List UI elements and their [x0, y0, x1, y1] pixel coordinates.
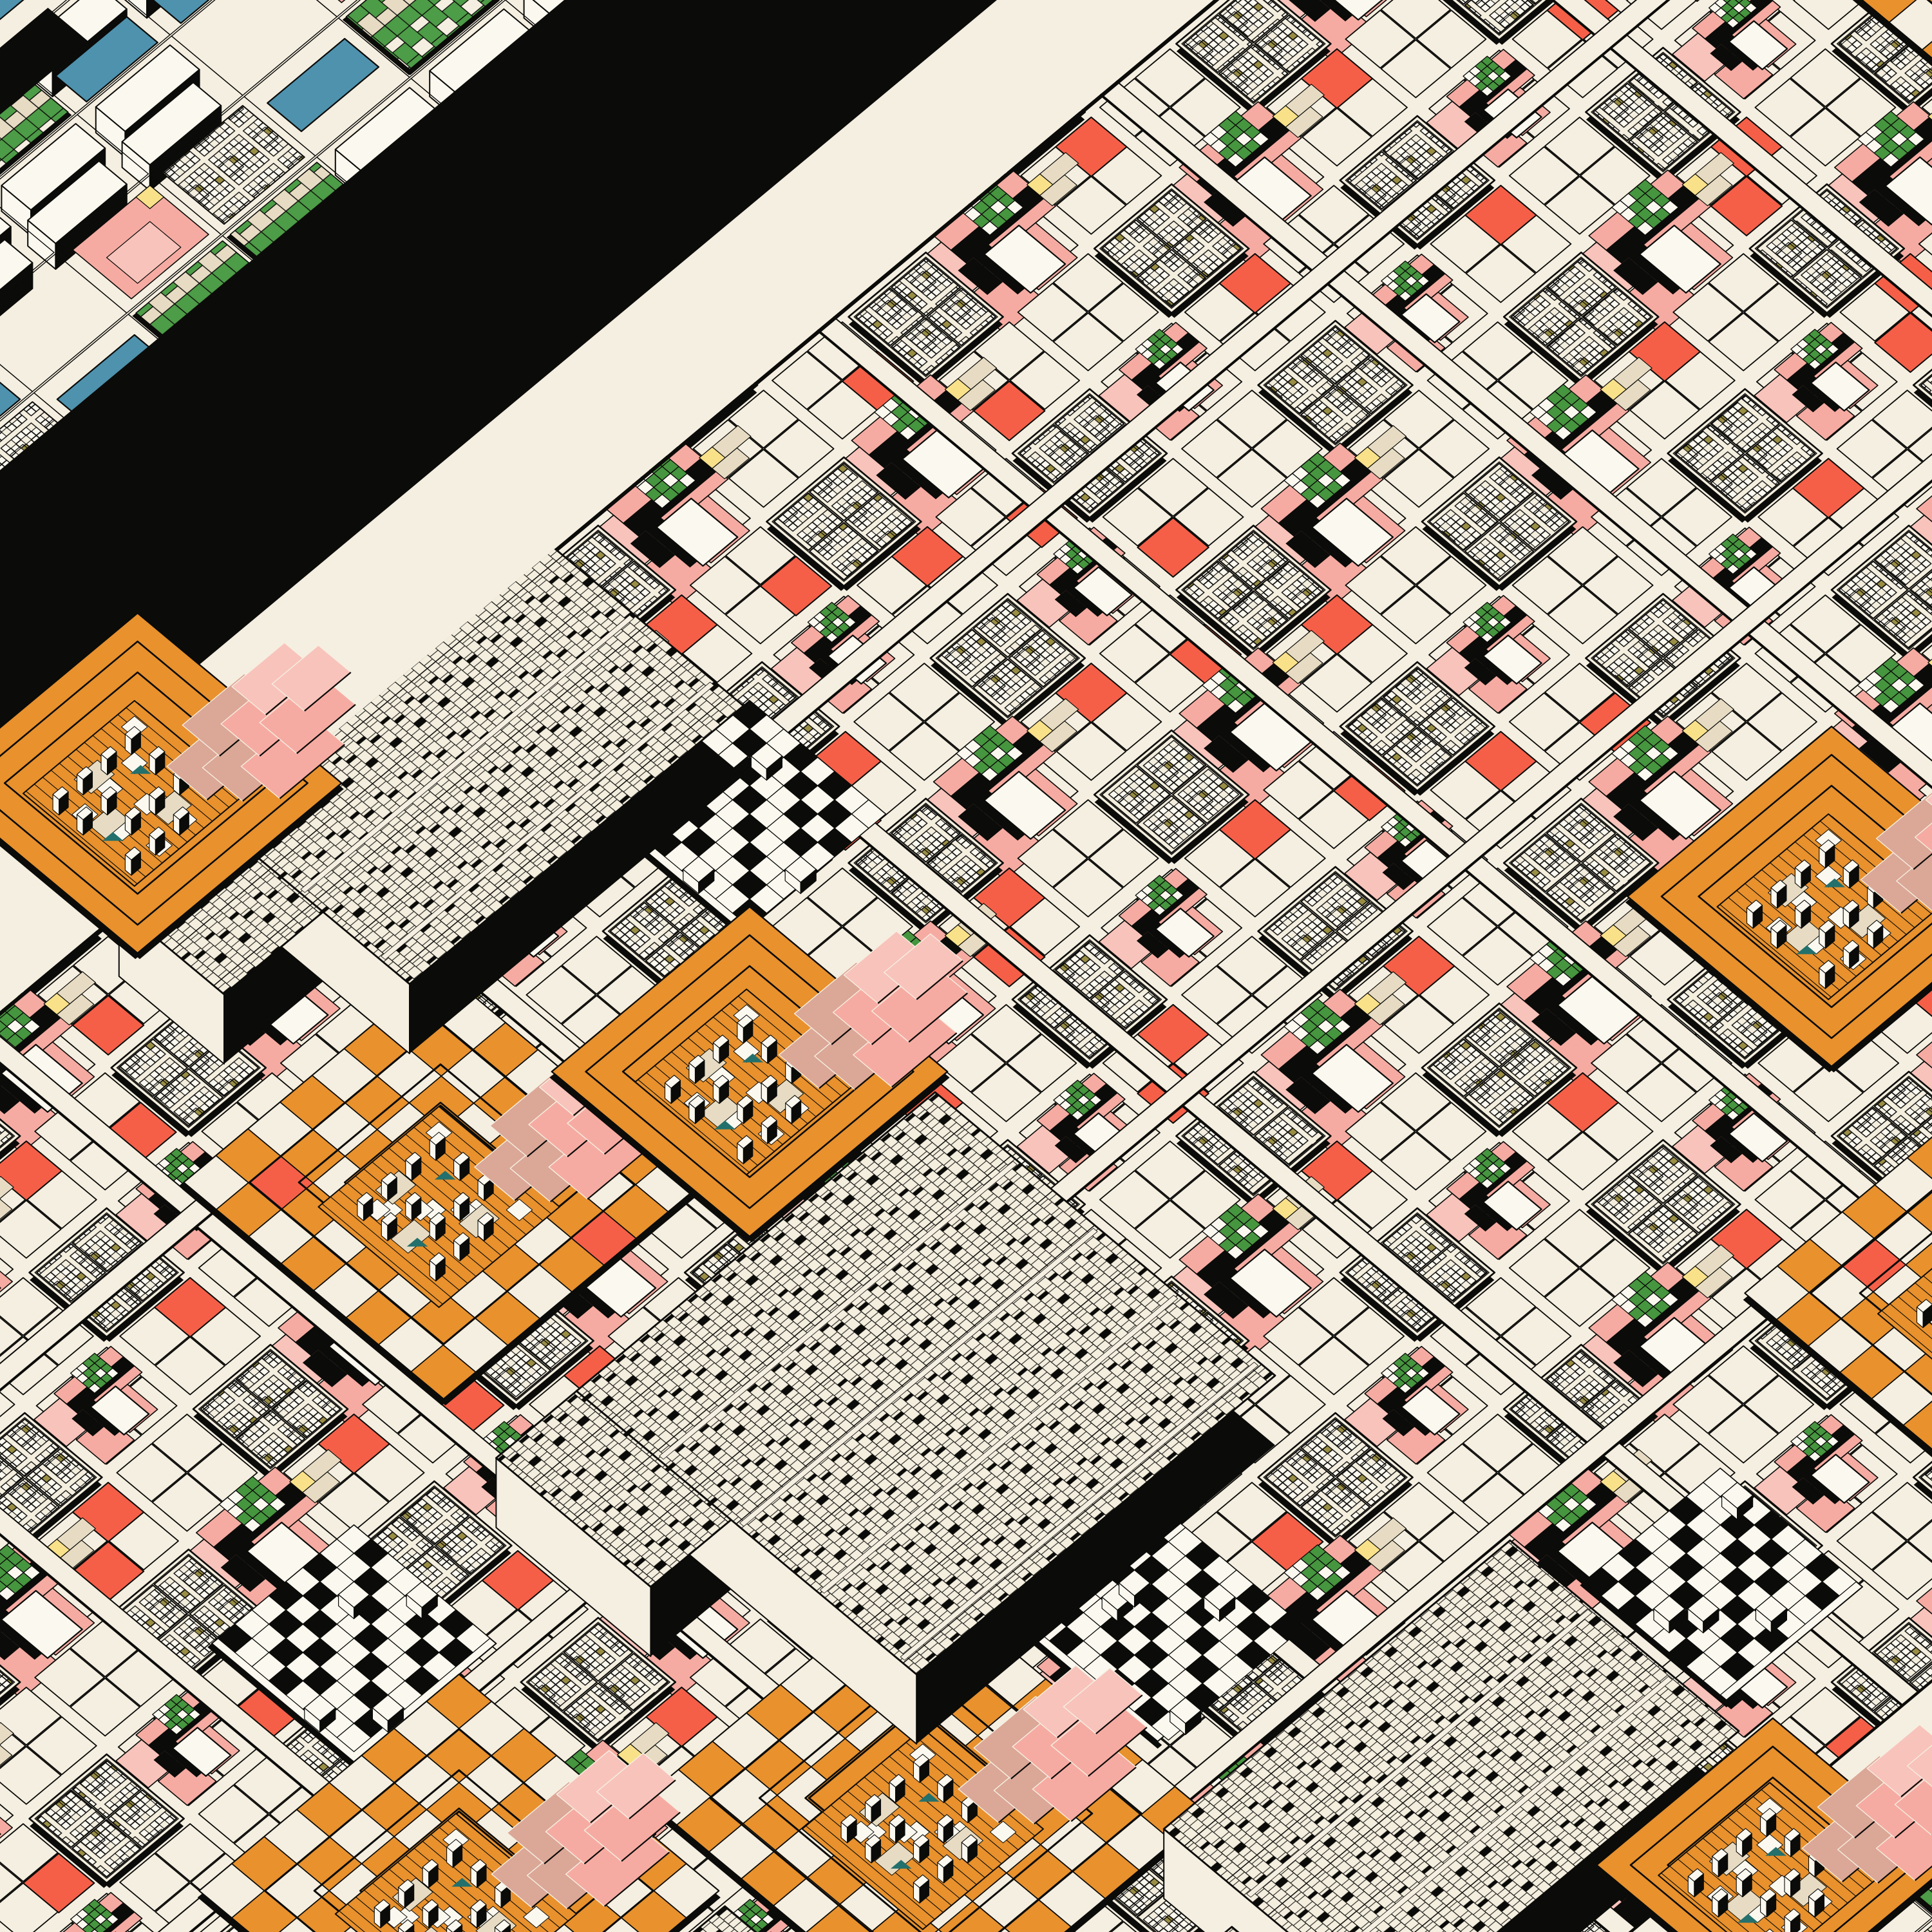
isometric-city-scene: [0, 0, 1932, 1932]
artwork-stage: [0, 0, 1932, 1932]
